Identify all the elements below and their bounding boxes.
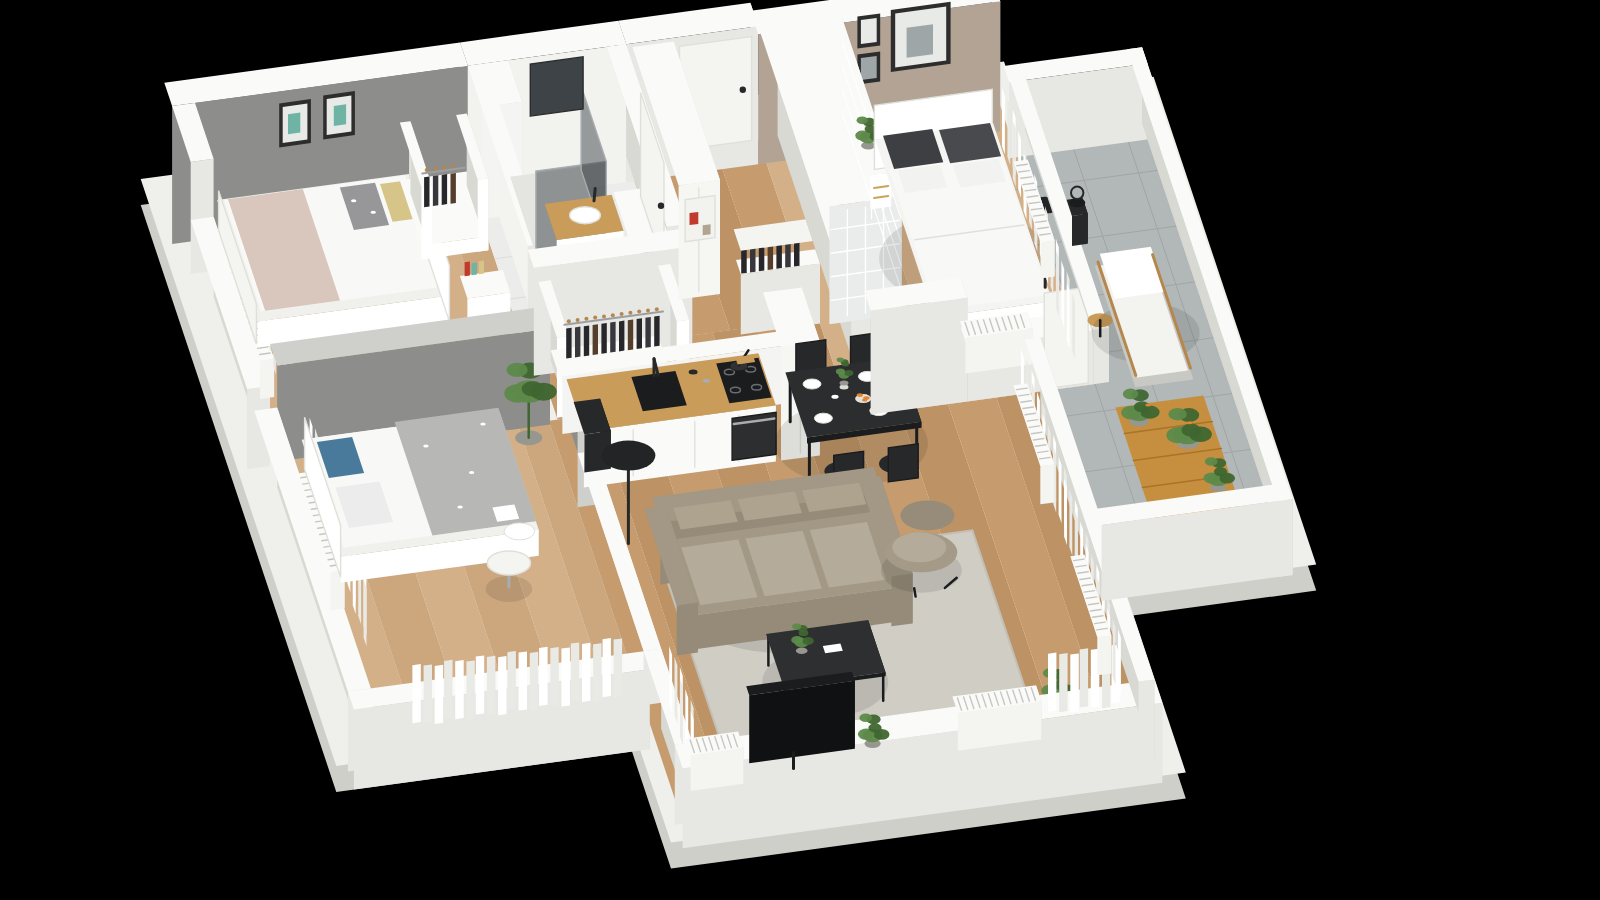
- utensil-jar: [689, 370, 698, 375]
- mirror: [530, 57, 583, 116]
- framed-map-picture: [323, 91, 355, 139]
- pillow: [939, 123, 1001, 163]
- plate: [814, 413, 832, 423]
- floor-lamp: [601, 441, 655, 471]
- radiator: [952, 685, 1041, 751]
- floorplan-3d-render: [0, 0, 1600, 900]
- plate: [803, 379, 821, 389]
- framed-map-picture: [279, 99, 311, 147]
- tv-panel: [746, 672, 855, 763]
- desk-chair: [487, 551, 530, 575]
- armchair-back: [900, 500, 954, 530]
- radiator: [685, 732, 743, 791]
- framed-picture-large: [891, 2, 951, 72]
- floorplan-stage: [0, 0, 1600, 900]
- framed-picture-small: [857, 13, 880, 48]
- basin: [570, 207, 601, 224]
- armchair-seat: [892, 532, 946, 562]
- cabinet-niche: [685, 196, 715, 242]
